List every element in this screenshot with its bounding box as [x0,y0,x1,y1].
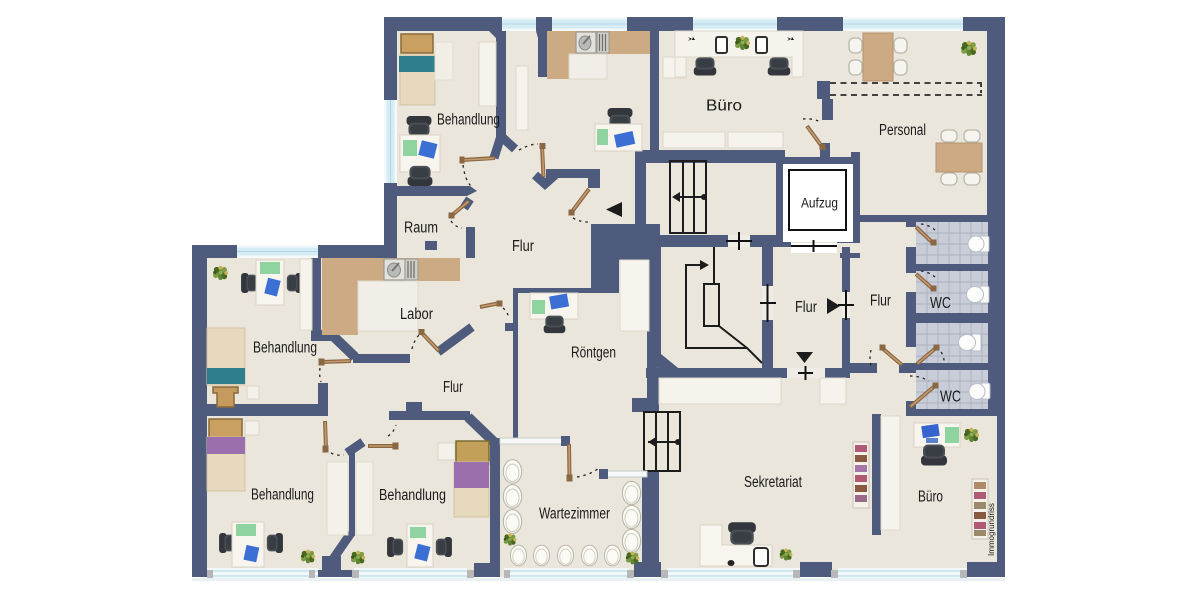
svg-text:Behandlung: Behandlung [437,112,500,129]
svg-text:Büro: Büro [706,98,742,115]
svg-text:Labor: Labor [400,306,433,323]
svg-text:Flur: Flur [795,299,817,316]
svg-text:Behandlung: Behandlung [379,487,446,504]
svg-text:Aufzug: Aufzug [801,195,838,211]
svg-text:WC: WC [940,389,961,406]
svg-text:Röntgen: Röntgen [571,345,616,362]
svg-text:Behandlung: Behandlung [253,340,317,357]
svg-text:Flur: Flur [512,238,534,255]
svg-text:Immogrundriss: Immogrundriss [987,503,996,556]
svg-text:WC: WC [930,295,951,312]
svg-text:Büro: Büro [918,489,943,506]
svg-text:Behandlung: Behandlung [251,487,314,504]
svg-text:Personal: Personal [879,122,926,139]
svg-text:Raum: Raum [404,220,438,237]
svg-text:Wartezimmer: Wartezimmer [539,506,610,523]
svg-text:Flur: Flur [443,379,463,396]
svg-text:Flur: Flur [870,293,891,310]
svg-text:Sekretariat: Sekretariat [744,474,803,491]
